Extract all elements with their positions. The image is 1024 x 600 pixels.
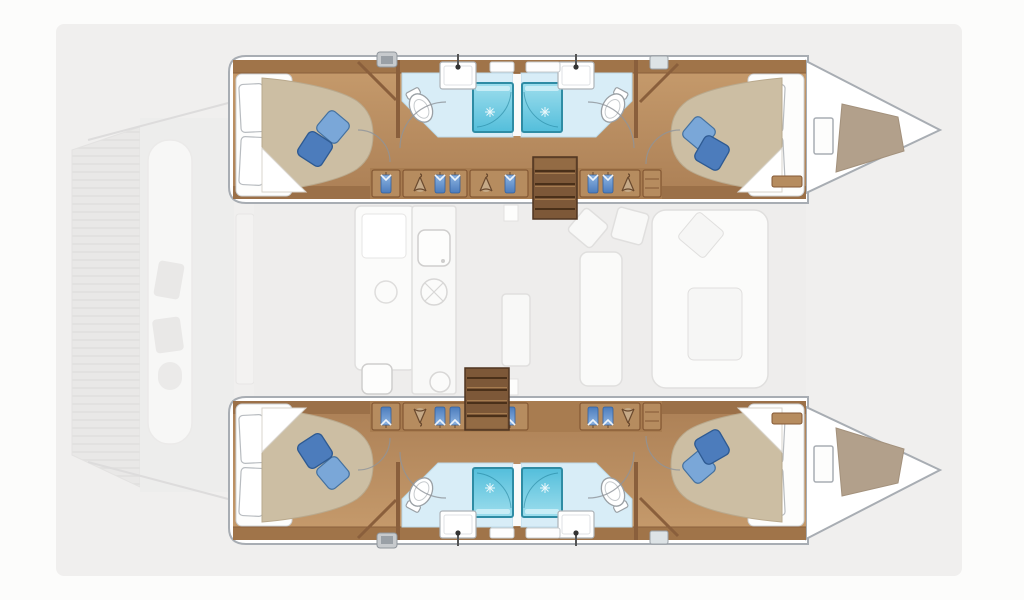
shower-sparkle-icon [485, 107, 495, 117]
port-companionway-stairs [533, 157, 577, 219]
saloon-table-ghost [502, 294, 530, 366]
foot-cabinet [772, 176, 802, 187]
shower-partition [513, 74, 521, 136]
clothes-icon [588, 172, 598, 193]
shower-sparkle-icon [540, 107, 550, 117]
clothes-icon [603, 172, 613, 193]
aft-deck-ghost [72, 102, 254, 500]
port-hull [229, 52, 940, 203]
bed-pillow [239, 83, 265, 132]
deck-hatch-icon [650, 56, 668, 69]
wardrobes [370, 168, 662, 199]
starboard-companionway-stairs [465, 368, 509, 430]
closet-panel [470, 170, 528, 197]
dining-bench-ghost [580, 252, 622, 386]
shelf-panel [643, 170, 661, 197]
clothes-icon [505, 172, 515, 193]
bed-pillow [239, 136, 265, 185]
clothes-icon [450, 172, 460, 193]
deck-hatch-icon [490, 62, 514, 72]
deck-hatch-icon [526, 62, 560, 72]
galley-sink-ghost [418, 230, 450, 266]
starboard-hull [229, 397, 940, 548]
bow-hatch [814, 118, 833, 154]
cockpit-door-ghost [236, 214, 254, 384]
clothes-icon [435, 172, 445, 193]
hull-side-trim [233, 60, 806, 73]
catamaran-floorplan-page [0, 0, 1024, 600]
saloon-ghost [254, 203, 806, 397]
faucet-icon [573, 64, 578, 69]
faucet-icon [455, 64, 460, 69]
catamaran-floorplan-diagram [0, 0, 1024, 600]
clothes-icon [381, 172, 391, 193]
deck-planking [72, 127, 140, 487]
